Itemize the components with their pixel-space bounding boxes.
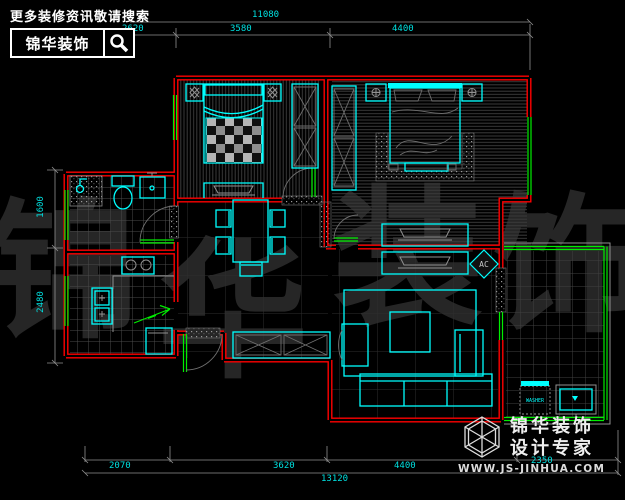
- dim-bottom-seg2: 3620: [273, 461, 295, 471]
- balcony-door: [500, 312, 503, 340]
- header-tagline: 更多装修资讯敬请搜索: [10, 6, 150, 25]
- balcony-floor: [506, 251, 604, 417]
- footer-logo: 锦华装饰 设计专家 WWW.JS-JINHUA.COM: [458, 415, 623, 475]
- shower: [70, 176, 102, 206]
- dim-left-seg1: 1600: [36, 196, 46, 218]
- dim-bottom-seg1: 2070: [109, 461, 131, 471]
- dim-bottom-total: 13120: [321, 474, 348, 484]
- header-brand: 锦华装饰: [12, 30, 103, 56]
- footer-brand: 锦华装饰: [510, 416, 594, 438]
- ac-label: AC: [479, 260, 489, 269]
- footer-website: WWW.JS-JINHUA.COM: [458, 463, 623, 475]
- footer-subtitle: 设计专家: [510, 438, 594, 460]
- dim-bottom-seg3: 4400: [394, 461, 416, 471]
- header-logo: 更多装修资讯敬请搜索 锦华装饰: [10, 6, 150, 58]
- bed-left-blanket: [206, 118, 262, 163]
- bedroom-master-window: [528, 117, 531, 195]
- floor-plan-canvas: 锦 华 装 饰: [0, 0, 625, 500]
- search-icon: [103, 30, 133, 56]
- bed-master-headboard: [388, 83, 462, 88]
- dim-top-total: 11080: [252, 10, 279, 20]
- washer-top: [521, 381, 549, 386]
- dim-left-seg2: 2480: [36, 291, 46, 313]
- cube-logo-icon: [458, 415, 506, 461]
- dim-top-seg3: 4400: [392, 24, 414, 34]
- dim-top-seg2: 3580: [230, 24, 252, 34]
- header-brand-box: 锦华装饰: [10, 28, 135, 58]
- washer-label: WASHER: [526, 398, 545, 404]
